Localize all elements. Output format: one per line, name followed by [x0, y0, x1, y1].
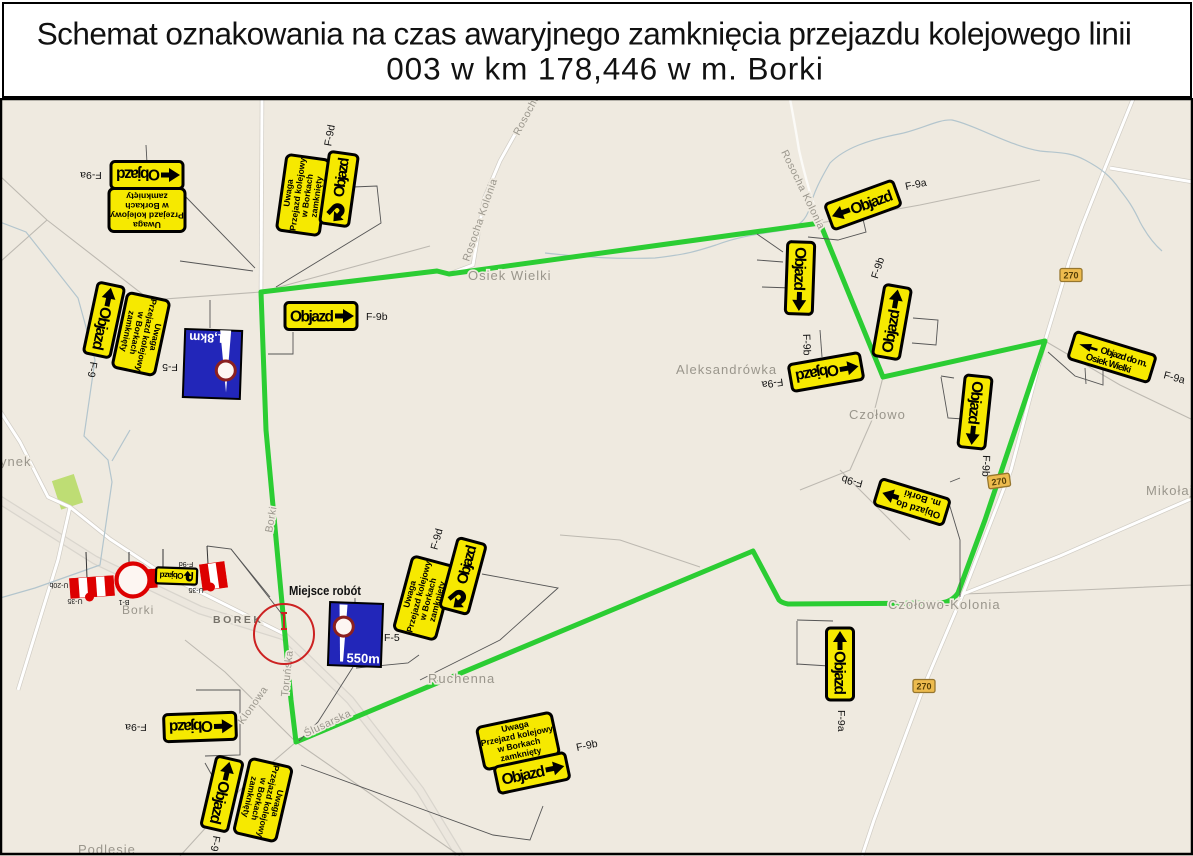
svg-text:1,8km: 1,8km: [189, 330, 225, 345]
svg-text:B-1: B-1: [118, 598, 129, 605]
svg-text:Miejsce robót: Miejsce robót: [289, 583, 362, 598]
svg-text:U-20b: U-20b: [49, 581, 68, 588]
svg-text:U-35: U-35: [67, 597, 82, 604]
svg-text:Ruchenna: Ruchenna: [428, 671, 495, 686]
svg-text:F-9b: F-9b: [979, 455, 992, 477]
svg-text:F-9a: F-9a: [835, 710, 847, 732]
svg-text:F-9d: F-9d: [179, 560, 194, 567]
svg-text:F-9b: F-9b: [800, 334, 813, 356]
svg-text:F-5: F-5: [162, 361, 178, 373]
svg-text:F-5: F-5: [384, 632, 400, 644]
svg-text:Objazd: Objazd: [159, 570, 183, 580]
svg-text:F-9b: F-9b: [366, 311, 388, 323]
svg-text:Czołowo-Kolonia: Czołowo-Kolonia: [888, 597, 1001, 612]
svg-text:F-9a: F-9a: [125, 721, 147, 733]
svg-text:Czołowo: Czołowo: [849, 407, 906, 422]
svg-text:F-9a: F-9a: [80, 169, 102, 181]
svg-text:550m: 550m: [346, 650, 380, 666]
svg-text:Mikołaje: Mikołaje: [1146, 483, 1193, 498]
svg-text:U-35: U-35: [188, 586, 203, 593]
svg-text:Osiek Wielki: Osiek Wielki: [468, 268, 552, 283]
svg-text:Aleksandrówka: Aleksandrówka: [676, 362, 777, 377]
svg-text:ynek: ynek: [0, 454, 31, 469]
